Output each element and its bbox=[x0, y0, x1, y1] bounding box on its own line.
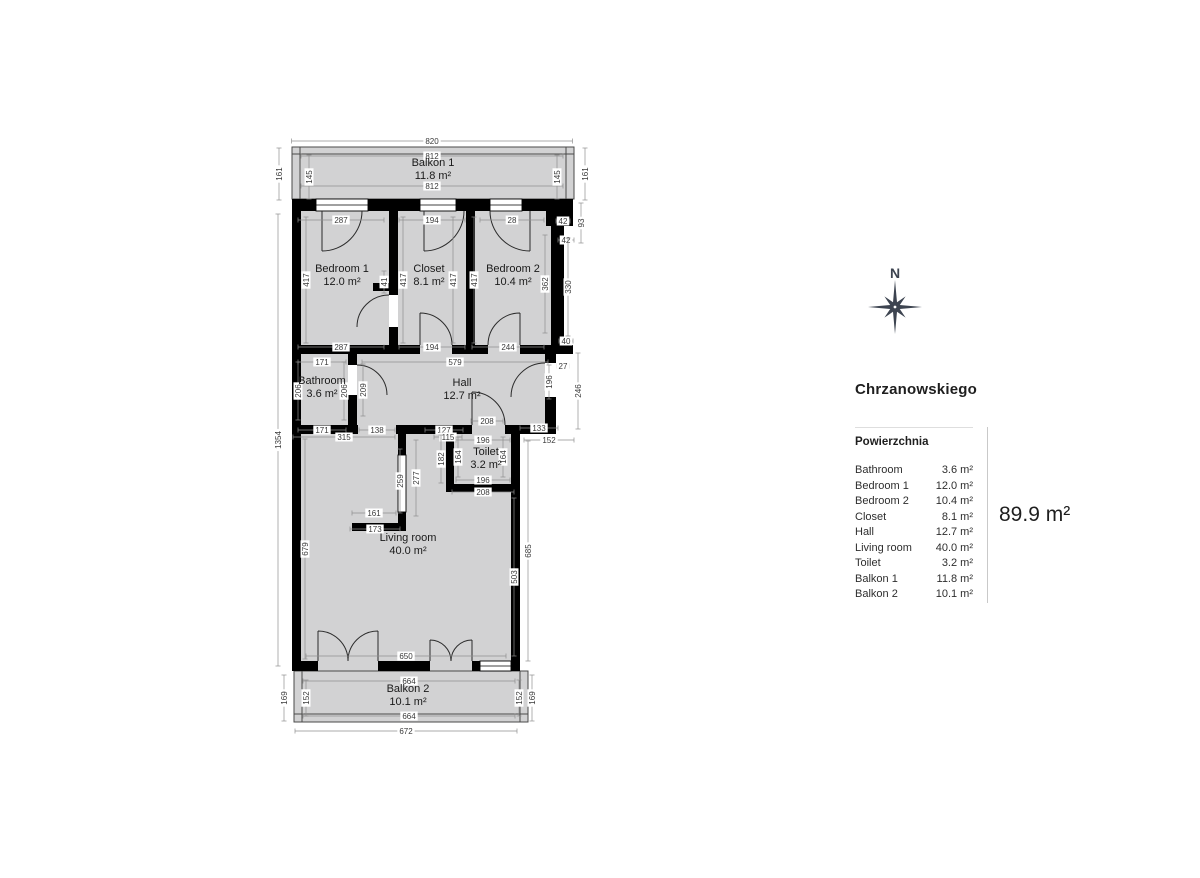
dim-label: 27 bbox=[559, 362, 568, 371]
dim-label: 28 bbox=[508, 216, 517, 225]
dim-label: 115 bbox=[442, 433, 455, 442]
dim-label: 208 bbox=[480, 417, 494, 426]
area-table-row: Bathroom3.6 m² bbox=[855, 463, 973, 479]
dim-label: 672 bbox=[399, 727, 413, 736]
dim-label: 330 bbox=[564, 280, 573, 294]
dim-label: 161 bbox=[275, 167, 284, 181]
dim-label: 196 bbox=[545, 375, 554, 389]
dim-label: 417 bbox=[302, 273, 311, 287]
room-area-value: 3.2 m² bbox=[942, 556, 973, 572]
dimension: 685 bbox=[524, 441, 533, 661]
legend-panel: Chrzanowskiego Powierzchnia Bathroom3.6 … bbox=[855, 381, 1115, 603]
room-label-name: Closet bbox=[413, 263, 444, 275]
floor-plan: 8208128121611451451612871942842934241741… bbox=[264, 132, 604, 748]
dim-label: 208 bbox=[476, 488, 490, 497]
dim-label: 503 bbox=[510, 570, 519, 584]
dim-label: 650 bbox=[399, 652, 413, 661]
room-label-name: Bedroom 2 bbox=[486, 263, 540, 275]
dim-label: 133 bbox=[532, 424, 546, 433]
room-name: Balkon 2 bbox=[855, 587, 898, 603]
dimension: 246 bbox=[574, 353, 583, 429]
room-label-area: 12.7 m² bbox=[443, 390, 481, 402]
dim-label: 417 bbox=[470, 273, 479, 287]
dim-label: 145 bbox=[553, 170, 562, 184]
dim-label: 820 bbox=[425, 137, 439, 146]
room-name: Balkon 1 bbox=[855, 572, 898, 588]
room-label: Balkon 111.8 m² bbox=[412, 157, 455, 182]
room-label-name: Toilet bbox=[473, 446, 499, 458]
area-table-row: Bedroom 210.4 m² bbox=[855, 494, 973, 510]
dim-label: 42 bbox=[559, 217, 568, 226]
dim-label: 287 bbox=[334, 343, 348, 352]
dim-label: 161 bbox=[367, 509, 381, 518]
legend-title: Chrzanowskiego bbox=[855, 381, 1115, 398]
dim-label: 194 bbox=[425, 216, 439, 225]
room-label-name: Balkon 1 bbox=[412, 157, 455, 169]
dim-label: 664 bbox=[402, 712, 416, 721]
area-table-row: Living room40.0 m² bbox=[855, 541, 973, 557]
dimension: 161 bbox=[581, 148, 590, 200]
room-area-value: 12.0 m² bbox=[936, 479, 973, 495]
dim-label: 287 bbox=[334, 216, 348, 225]
dim-label: 196 bbox=[476, 476, 490, 485]
room-name: Hall bbox=[855, 525, 874, 541]
dimension: 40 bbox=[559, 337, 573, 346]
dimension: 42 bbox=[556, 217, 570, 226]
room-label: Balkon 210.1 m² bbox=[387, 683, 430, 708]
dim-label: 41 bbox=[380, 277, 389, 286]
total-area: 89.9 m² bbox=[999, 503, 1070, 527]
room-label-name: Bedroom 1 bbox=[315, 263, 369, 275]
room-name: Toilet bbox=[855, 556, 881, 572]
room-label: Closet8.1 m² bbox=[413, 263, 445, 288]
room-name: Closet bbox=[855, 510, 886, 526]
area-table-row: Balkon 111.8 m² bbox=[855, 572, 973, 588]
area-table-row: Toilet3.2 m² bbox=[855, 556, 973, 572]
dim-label: 277 bbox=[412, 471, 421, 485]
room-label-name: Living room bbox=[380, 532, 437, 544]
dimension: 161 bbox=[275, 148, 284, 200]
dimension: 820 bbox=[292, 137, 573, 146]
dim-label: 169 bbox=[280, 691, 289, 705]
dim-label: 42 bbox=[562, 236, 571, 245]
dim-label: 209 bbox=[359, 383, 368, 397]
room-name: Living room bbox=[855, 541, 912, 557]
dim-label: 244 bbox=[501, 343, 515, 352]
dim-label: 164 bbox=[454, 450, 463, 464]
dim-label: 315 bbox=[337, 433, 351, 442]
room-label-area: 3.2 m² bbox=[470, 459, 502, 471]
legend-body: Powierzchnia Bathroom3.6 m²Bedroom 112.0… bbox=[855, 427, 1115, 603]
dim-label: 152 bbox=[515, 691, 524, 705]
room-area-value: 10.4 m² bbox=[936, 494, 973, 510]
legend-divider bbox=[987, 427, 988, 603]
room-area-value: 11.8 m² bbox=[937, 572, 973, 588]
dimension: 672 bbox=[295, 727, 517, 736]
room-label-area: 10.1 m² bbox=[389, 696, 427, 708]
room-name: Bathroom bbox=[855, 463, 903, 479]
room-area-value: 8.1 m² bbox=[942, 510, 973, 526]
room-label-name: Balkon 2 bbox=[387, 683, 430, 695]
room-label-area: 11.8 m² bbox=[415, 170, 452, 182]
dimension: 93 bbox=[577, 203, 586, 243]
dim-label: 171 bbox=[315, 358, 329, 367]
area-table: Powierzchnia Bathroom3.6 m²Bedroom 112.0… bbox=[855, 427, 973, 603]
dim-label: 1354 bbox=[274, 431, 283, 449]
room-label-area: 8.1 m² bbox=[413, 276, 445, 288]
compass-north-label: N bbox=[890, 265, 900, 281]
dim-label: 171 bbox=[315, 426, 329, 435]
dim-label: 579 bbox=[448, 358, 462, 367]
dim-label: 246 bbox=[574, 384, 583, 398]
dimension: 27 bbox=[557, 362, 570, 371]
dim-label: 152 bbox=[302, 691, 311, 705]
dim-label: 40 bbox=[562, 337, 571, 346]
dim-label: 679 bbox=[301, 542, 310, 556]
dimension: 42 bbox=[558, 236, 574, 245]
dim-label: 362 bbox=[541, 277, 550, 291]
dim-label: 259 bbox=[396, 474, 405, 488]
dim-label: 417 bbox=[449, 273, 458, 287]
dim-label: 417 bbox=[399, 273, 408, 287]
dim-label: 152 bbox=[542, 436, 556, 445]
area-table-row: Hall12.7 m² bbox=[855, 525, 973, 541]
dim-label: 161 bbox=[581, 167, 590, 181]
room-label-area: 40.0 m² bbox=[389, 545, 427, 557]
dim-label: 93 bbox=[577, 218, 586, 227]
compass: N bbox=[860, 255, 930, 350]
room-area-value: 10.1 m² bbox=[936, 587, 973, 603]
area-table-header: Powierzchnia bbox=[855, 436, 973, 448]
dim-label: 196 bbox=[476, 436, 490, 445]
floor-plan-page: 8208128121611451451612871942842934241741… bbox=[0, 0, 1200, 878]
room-area-value: 12.7 m² bbox=[936, 525, 973, 541]
dimension: 169 bbox=[280, 675, 289, 721]
room-label-name: Hall bbox=[453, 377, 472, 389]
room-label-name: Bathroom bbox=[298, 375, 346, 387]
room-name: Bedroom 2 bbox=[855, 494, 909, 510]
dim-label: 685 bbox=[524, 544, 533, 558]
area-table-row: Balkon 210.1 m² bbox=[855, 587, 973, 603]
dimension: 152 bbox=[524, 436, 574, 445]
area-table-row: Bedroom 112.0 m² bbox=[855, 479, 973, 495]
compass-center bbox=[892, 304, 898, 310]
dimension: 169 bbox=[528, 675, 537, 721]
room-name: Bedroom 1 bbox=[855, 479, 909, 495]
room-area-value: 3.6 m² bbox=[942, 463, 973, 479]
dimension: 1354 bbox=[274, 214, 283, 666]
room-label-area: 10.4 m² bbox=[494, 276, 532, 288]
room-label-area: 3.6 m² bbox=[306, 388, 338, 400]
area-table-rows: Bathroom3.6 m²Bedroom 112.0 m²Bedroom 21… bbox=[855, 463, 973, 603]
area-table-row: Closet8.1 m² bbox=[855, 510, 973, 526]
room-area-value: 40.0 m² bbox=[936, 541, 973, 557]
dim-label: 182 bbox=[437, 452, 446, 466]
room-label-area: 12.0 m² bbox=[323, 276, 361, 288]
dim-label: 812 bbox=[425, 182, 439, 191]
room-label: Toilet3.2 m² bbox=[470, 446, 502, 471]
dimension: 330 bbox=[564, 238, 573, 336]
dim-label: 194 bbox=[425, 343, 439, 352]
dim-label: 145 bbox=[305, 170, 314, 184]
dim-label: 138 bbox=[370, 426, 384, 435]
dim-label: 169 bbox=[528, 691, 537, 705]
